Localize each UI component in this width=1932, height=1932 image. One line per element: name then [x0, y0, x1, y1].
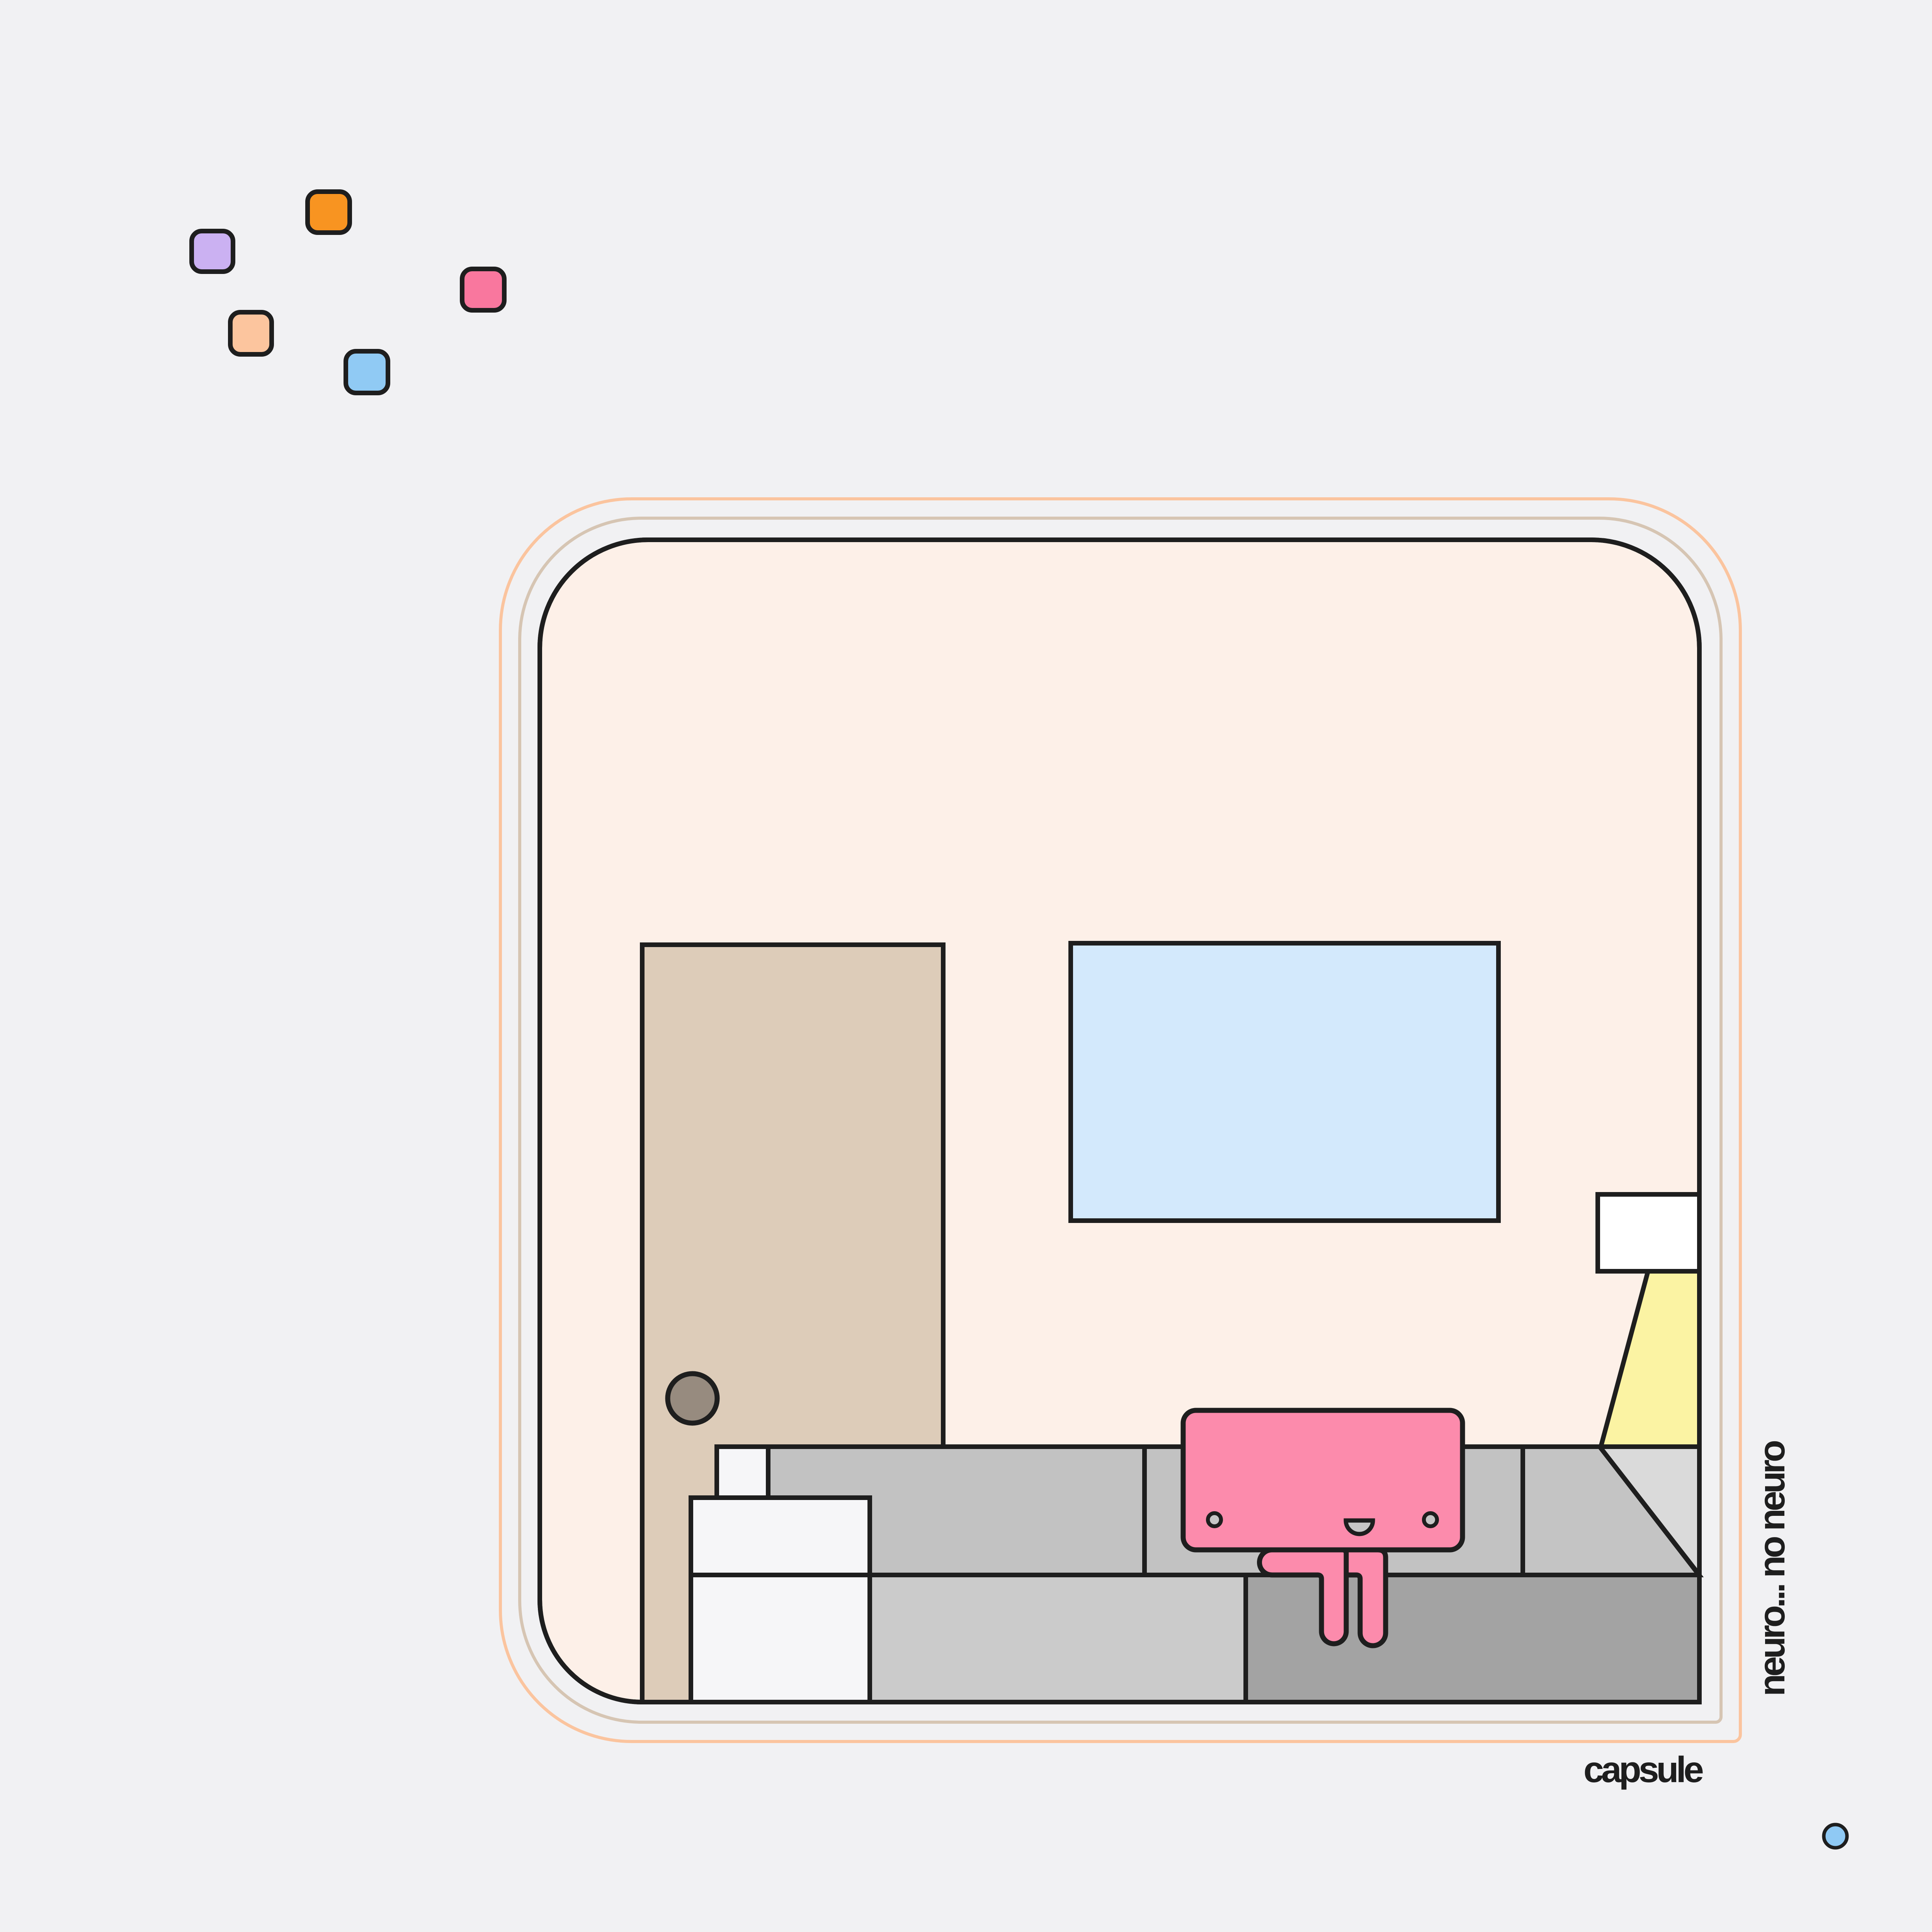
svg-text:neuro... no neuro: neuro... no neuro — [1752, 1441, 1793, 1696]
svg-text:capsule: capsule — [1583, 1749, 1703, 1790]
